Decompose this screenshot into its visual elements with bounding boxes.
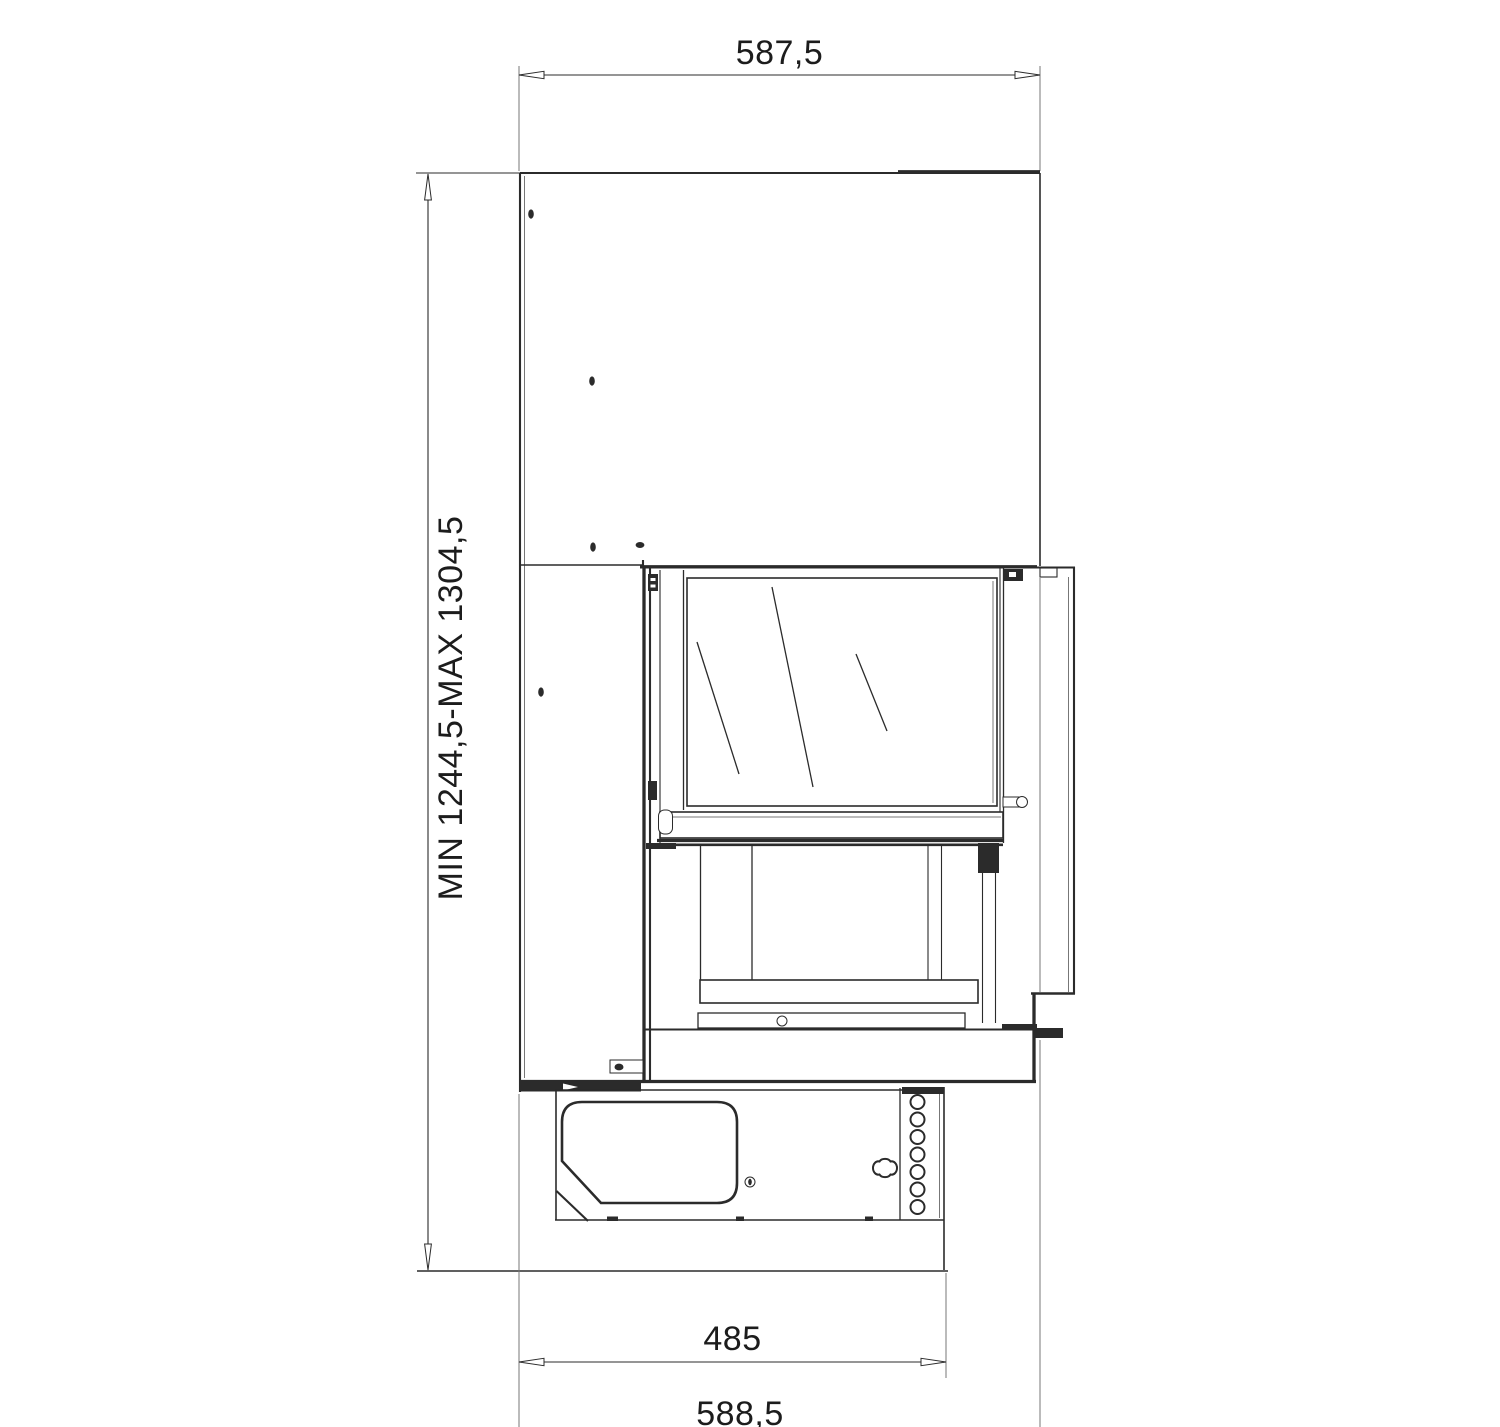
bolt-hole [911,1095,925,1109]
foot-tick [736,1217,744,1222]
glass-reflection-line [697,642,739,774]
hood-box [520,172,1040,1092]
screw [528,209,534,218]
dimension-label-top-width: 587,5 [519,36,1040,70]
hinge-keeper [659,810,673,834]
rear-foot-bracket [1035,1028,1063,1038]
bolt-hole [911,1113,925,1127]
foot-tick [607,1217,618,1222]
firebox-section [519,560,1075,1092]
arrowhead-right-icon [1015,71,1040,78]
bolt-bracket-top [902,1087,944,1094]
right-wall-notch [1040,568,1057,577]
fireplace-side-view-drawing [0,0,1500,1427]
arrowhead-right-icon [921,1358,946,1365]
pedestal [555,1087,944,1270]
bottom-dark-strip [1002,1024,1037,1030]
door-hinge-lower [648,781,657,800]
screw [636,542,645,548]
arrowhead-left-icon [519,1358,544,1365]
technical-drawing-page: 587,5 MIN 1244,5-MAX 1304,5 485 588,5 [0,0,1500,1427]
bolt-hole [911,1183,925,1197]
screw [615,1064,624,1071]
latch-bracket-lower [978,843,999,873]
screw [590,542,596,551]
bolt-hole [911,1200,925,1214]
dimension-label-base-width: 485 [519,1322,946,1356]
spring-clip-notch [651,585,656,588]
arrowhead-left-icon [519,71,544,78]
sill-bracket [646,843,676,849]
door-handle-knob [1017,797,1028,808]
bolt-hole [911,1130,925,1144]
bolt-hole [911,1148,925,1162]
dimension-label-height-range: MIN 1244,5-MAX 1304,5 [434,516,468,901]
top-width-dimension [519,66,1040,171]
foot-tick [865,1217,873,1222]
door-bottom-bar [660,812,1003,838]
screw-slot [748,1179,752,1185]
arrowhead-up-icon [425,174,432,200]
base-width-dimension [519,1094,946,1427]
bottom-front-panel [698,1013,965,1028]
door-latch-notch [1009,572,1016,577]
cutout-chamfer-line [557,1191,589,1221]
spring-clip-notch [651,578,656,581]
arrowhead-down-icon [425,1244,432,1270]
keyhole-cutout [873,1159,897,1177]
glass-reflection-line [772,587,813,787]
ash-shelf [700,980,978,1003]
access-cutout [562,1102,737,1203]
bolt-hole [911,1165,925,1179]
screw [589,376,595,385]
spring-clip [648,574,658,591]
dimension-label-bottom-width: 588,5 [480,1397,1000,1427]
door-glass-pane [687,578,997,806]
screw [538,687,544,696]
screw [777,1016,787,1026]
glass-reflection-line [856,654,887,731]
